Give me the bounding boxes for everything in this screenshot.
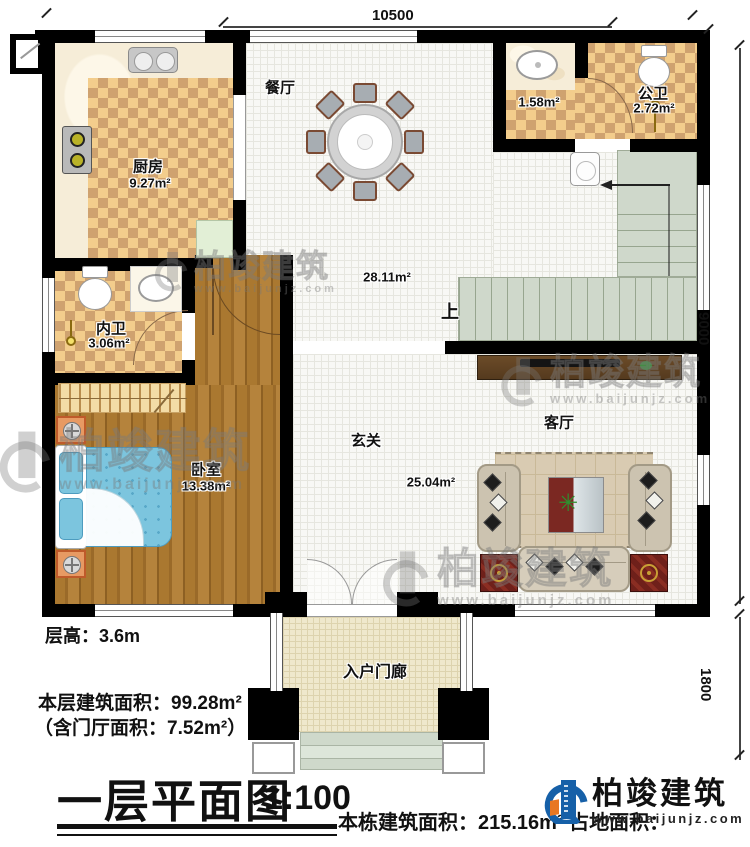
wardrobe (58, 383, 186, 413)
dining-chair (306, 130, 326, 154)
wall-segment (697, 30, 710, 185)
tv (520, 359, 620, 367)
room-area-kitchen: 9.27m² (129, 176, 170, 191)
room-label-bedroom: 卧室 (191, 459, 221, 480)
porch-side-sill (460, 613, 473, 691)
foyer-area-note: （含门厅面积：7.52m²） (34, 713, 246, 740)
wall-segment (575, 43, 588, 78)
room-label-foyer: 玄关 (351, 430, 381, 451)
tv-plant-decor (640, 361, 652, 370)
floor-plan: ✳ 餐厅 28.11m² 厨房 9.27m² 公卫 2.72m² 1.58m² … (0, 0, 750, 847)
door-leaf (212, 268, 214, 335)
wall-segment (445, 341, 697, 354)
brand-logo-icon (538, 778, 588, 824)
dimension-line-right (739, 48, 741, 604)
bed-pillow (59, 452, 83, 494)
wall-segment (493, 43, 506, 152)
plant-icon: ✳ (558, 489, 578, 518)
room-label-porch: 入户门廊 (343, 658, 407, 682)
window (697, 455, 710, 505)
wall-segment (630, 139, 710, 152)
wall-segment (42, 604, 95, 617)
wash-basin (516, 50, 558, 80)
entry-threshold (307, 604, 397, 617)
dining-chair (404, 130, 424, 154)
stair-walkline-vertical (668, 184, 670, 276)
stair-upper-treads (617, 214, 697, 277)
bed-pillow (59, 498, 83, 540)
chimney-flue (10, 34, 44, 74)
porch-steps (300, 732, 443, 770)
window (95, 30, 205, 43)
floor-height-note: 层高：3.6m (45, 622, 140, 648)
nightstand (56, 550, 86, 578)
window (42, 278, 55, 352)
corner-mark (687, 10, 698, 21)
wall-segment (697, 505, 710, 617)
title-underline (57, 824, 337, 829)
stairs-up-label: 上 (441, 298, 459, 324)
brand-logo: 柏竣建筑 www.baijunjz.com (538, 778, 744, 826)
room-area-washroom: 1.58m² (518, 95, 559, 110)
room-label-dining: 餐厅 (265, 77, 295, 98)
stair-walkline (612, 184, 670, 186)
dining-chair (353, 181, 377, 201)
wall-segment (417, 30, 710, 43)
room-area-bedroom: 13.38m² (182, 479, 230, 494)
floor-drain-stem (70, 320, 72, 336)
kitchen-opening (233, 95, 246, 200)
toilet (78, 266, 112, 312)
room-area-dining: 28.11m² (363, 270, 411, 285)
window (515, 604, 655, 617)
wall-segment (233, 43, 246, 95)
room-area-foyer: 25.04m² (407, 475, 455, 490)
porch-side-sill (270, 613, 283, 691)
room-label-kitchen: 厨房 (133, 156, 163, 177)
floor-drain (66, 336, 76, 346)
room-area-public-bath: 2.72m² (633, 101, 674, 116)
stair-arrow-icon (600, 180, 612, 190)
side-table (630, 554, 668, 592)
room-label-living: 客厅 (544, 412, 574, 433)
brand-name: 柏竣建筑 (592, 778, 744, 811)
room-area-ensuite: 3.06m² (88, 336, 129, 351)
window (697, 185, 710, 310)
title-underline-thin (57, 834, 337, 836)
dimension-tick (607, 17, 618, 28)
wall-segment (493, 139, 575, 152)
dining-set (305, 82, 425, 202)
stove (62, 126, 92, 174)
wash-basin (138, 274, 174, 302)
brand-website: www.baijunjz.com (592, 811, 744, 826)
wall-segment (280, 255, 293, 604)
building-total-area: 本栋建筑面积：215.16m² (338, 812, 564, 834)
wall-segment (205, 30, 250, 43)
window (95, 604, 233, 617)
kitchen-sink (128, 47, 178, 73)
stair-lower-flight (458, 277, 697, 341)
page-title: 一层平面图 (57, 765, 292, 830)
dimension-line-right-lower (739, 617, 741, 760)
window (250, 30, 417, 43)
dimension-right-main: 9000 (695, 312, 712, 345)
porch-column (438, 688, 489, 740)
wall-segment (233, 200, 246, 270)
corner-mark (41, 8, 52, 19)
dimension-top: 10500 (372, 7, 414, 24)
wall-segment (182, 271, 195, 313)
nightstand (56, 416, 86, 444)
wall-segment (397, 604, 515, 617)
dimension-right-porch: 1800 (697, 668, 714, 701)
coffee-table: ✳ (548, 477, 604, 533)
floor-area-note: 本层建筑面积：99.28m² (38, 688, 242, 715)
dimension-line-top (223, 26, 612, 28)
side-table (480, 554, 518, 592)
wall-segment (42, 352, 55, 604)
porch-column-base (442, 742, 485, 774)
porch-column (248, 688, 299, 740)
dining-chair (353, 83, 377, 103)
water-heater (570, 152, 600, 186)
kitchen-cabinet (196, 220, 233, 258)
